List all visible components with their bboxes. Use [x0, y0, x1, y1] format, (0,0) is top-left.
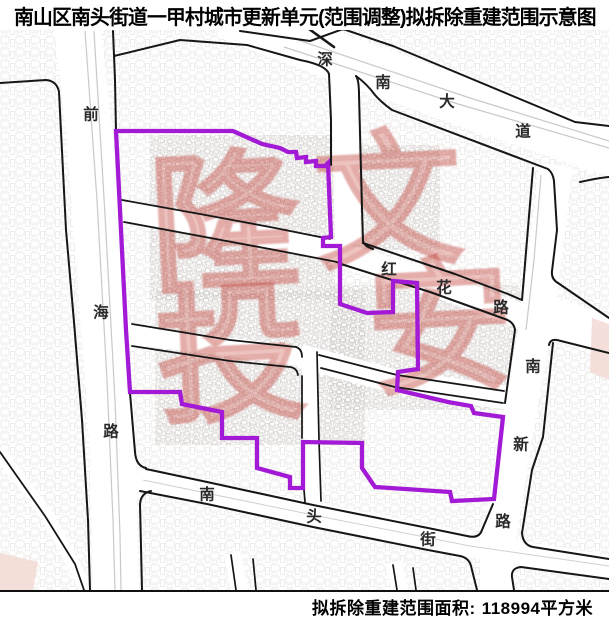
road-label-shennan-dadao: 大 [439, 92, 455, 111]
road-label-honghua-lu: 路 [493, 298, 509, 317]
road-label-nantou-jie: 头 [306, 508, 322, 526]
urban-renewal-map: 隆文投安 [0, 30, 609, 590]
road-label-nanxin-lu: 南 [525, 357, 541, 376]
watermark-char-3: 投 [152, 271, 310, 445]
road-label-qianhai-lu: 海 [93, 303, 109, 322]
road-label-qianhai-lu: 路 [103, 422, 119, 441]
road-label-shennan-dadao: 南 [375, 73, 391, 92]
road-label-nanxin-lu: 路 [495, 512, 511, 531]
road-label-shennan-dadao: 深 [317, 51, 333, 69]
footer-bar: 拟拆除重建范围面积: 118994平方米 [0, 590, 609, 621]
road-label-honghua-lu: 红 [381, 260, 397, 279]
road-label-honghua-lu: 花 [436, 278, 452, 297]
road-label-nantou-jie: 南 [199, 485, 215, 504]
road-label-nantou-jie: 街 [419, 530, 436, 549]
title-bar: 南山区南头街道一甲村城市更新单元(范围调整)拟拆除重建范围示意图 [0, 0, 609, 30]
road-label-qianhai-lu: 前 [83, 105, 99, 124]
map-area: 隆文投安 [0, 30, 609, 590]
road-label-shennan-dadao: 道 [515, 122, 531, 141]
page-title: 南山区南头街道一甲村城市更新单元(范围调整)拟拆除重建范围示意图 [14, 1, 596, 30]
area-value: 118994平方米 [482, 594, 593, 619]
area-label: 拟拆除重建范围面积: [312, 594, 476, 619]
road-label-nanxin-lu: 新 [513, 435, 529, 454]
plan-sheet: 南山区南头街道一甲村城市更新单元(范围调整)拟拆除重建范围示意图 [0, 0, 609, 623]
